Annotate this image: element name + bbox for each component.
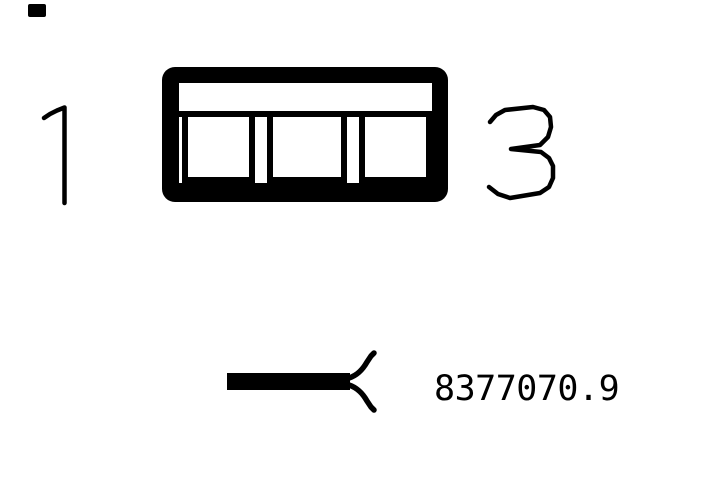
cavity-1 <box>182 111 255 183</box>
cavity-3 <box>359 111 432 183</box>
corner-registration-mark <box>28 4 46 17</box>
connector-diagram-canvas: 8377070.9 <box>0 0 704 502</box>
part-number: 8377070.9 <box>434 372 619 407</box>
connector-face <box>162 67 448 202</box>
cavity-2 <box>267 111 347 183</box>
connector-cavity-area <box>179 83 432 183</box>
